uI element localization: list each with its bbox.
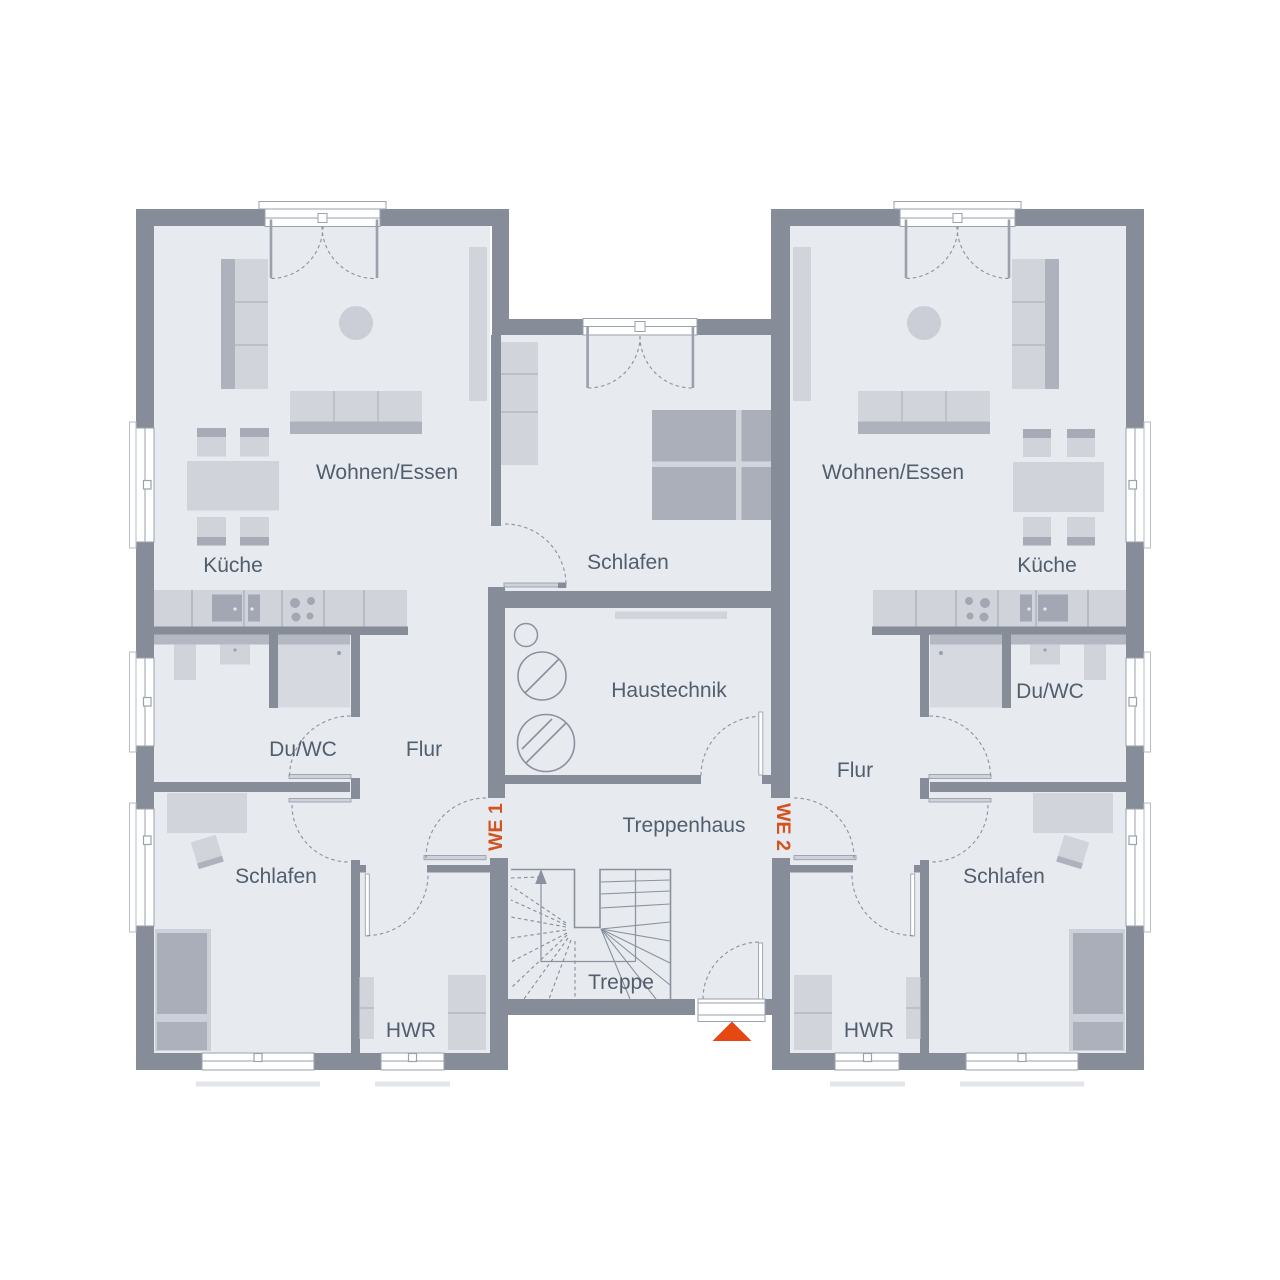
svg-text:Schlafen: Schlafen xyxy=(235,865,317,888)
svg-text:WE 2: WE 2 xyxy=(772,803,794,851)
svg-text:Flur: Flur xyxy=(406,738,442,761)
svg-text:Treppenhaus: Treppenhaus xyxy=(623,814,746,837)
svg-text:Treppe: Treppe xyxy=(588,971,654,994)
svg-text:HWR: HWR xyxy=(844,1019,894,1042)
svg-text:Du/WC: Du/WC xyxy=(1016,680,1084,703)
svg-text:Schlafen: Schlafen xyxy=(587,551,669,574)
svg-text:Wohnen/Essen: Wohnen/Essen xyxy=(822,461,964,484)
svg-text:WE 1: WE 1 xyxy=(485,803,507,851)
svg-text:Haustechnik: Haustechnik xyxy=(611,679,727,702)
svg-text:Du/WC: Du/WC xyxy=(269,738,337,761)
svg-text:Wohnen/Essen: Wohnen/Essen xyxy=(316,461,458,484)
svg-text:Schlafen: Schlafen xyxy=(963,865,1045,888)
svg-text:Flur: Flur xyxy=(837,759,873,782)
svg-text:Küche: Küche xyxy=(1017,554,1077,577)
svg-text:HWR: HWR xyxy=(386,1019,436,1042)
svg-text:Küche: Küche xyxy=(203,554,263,577)
